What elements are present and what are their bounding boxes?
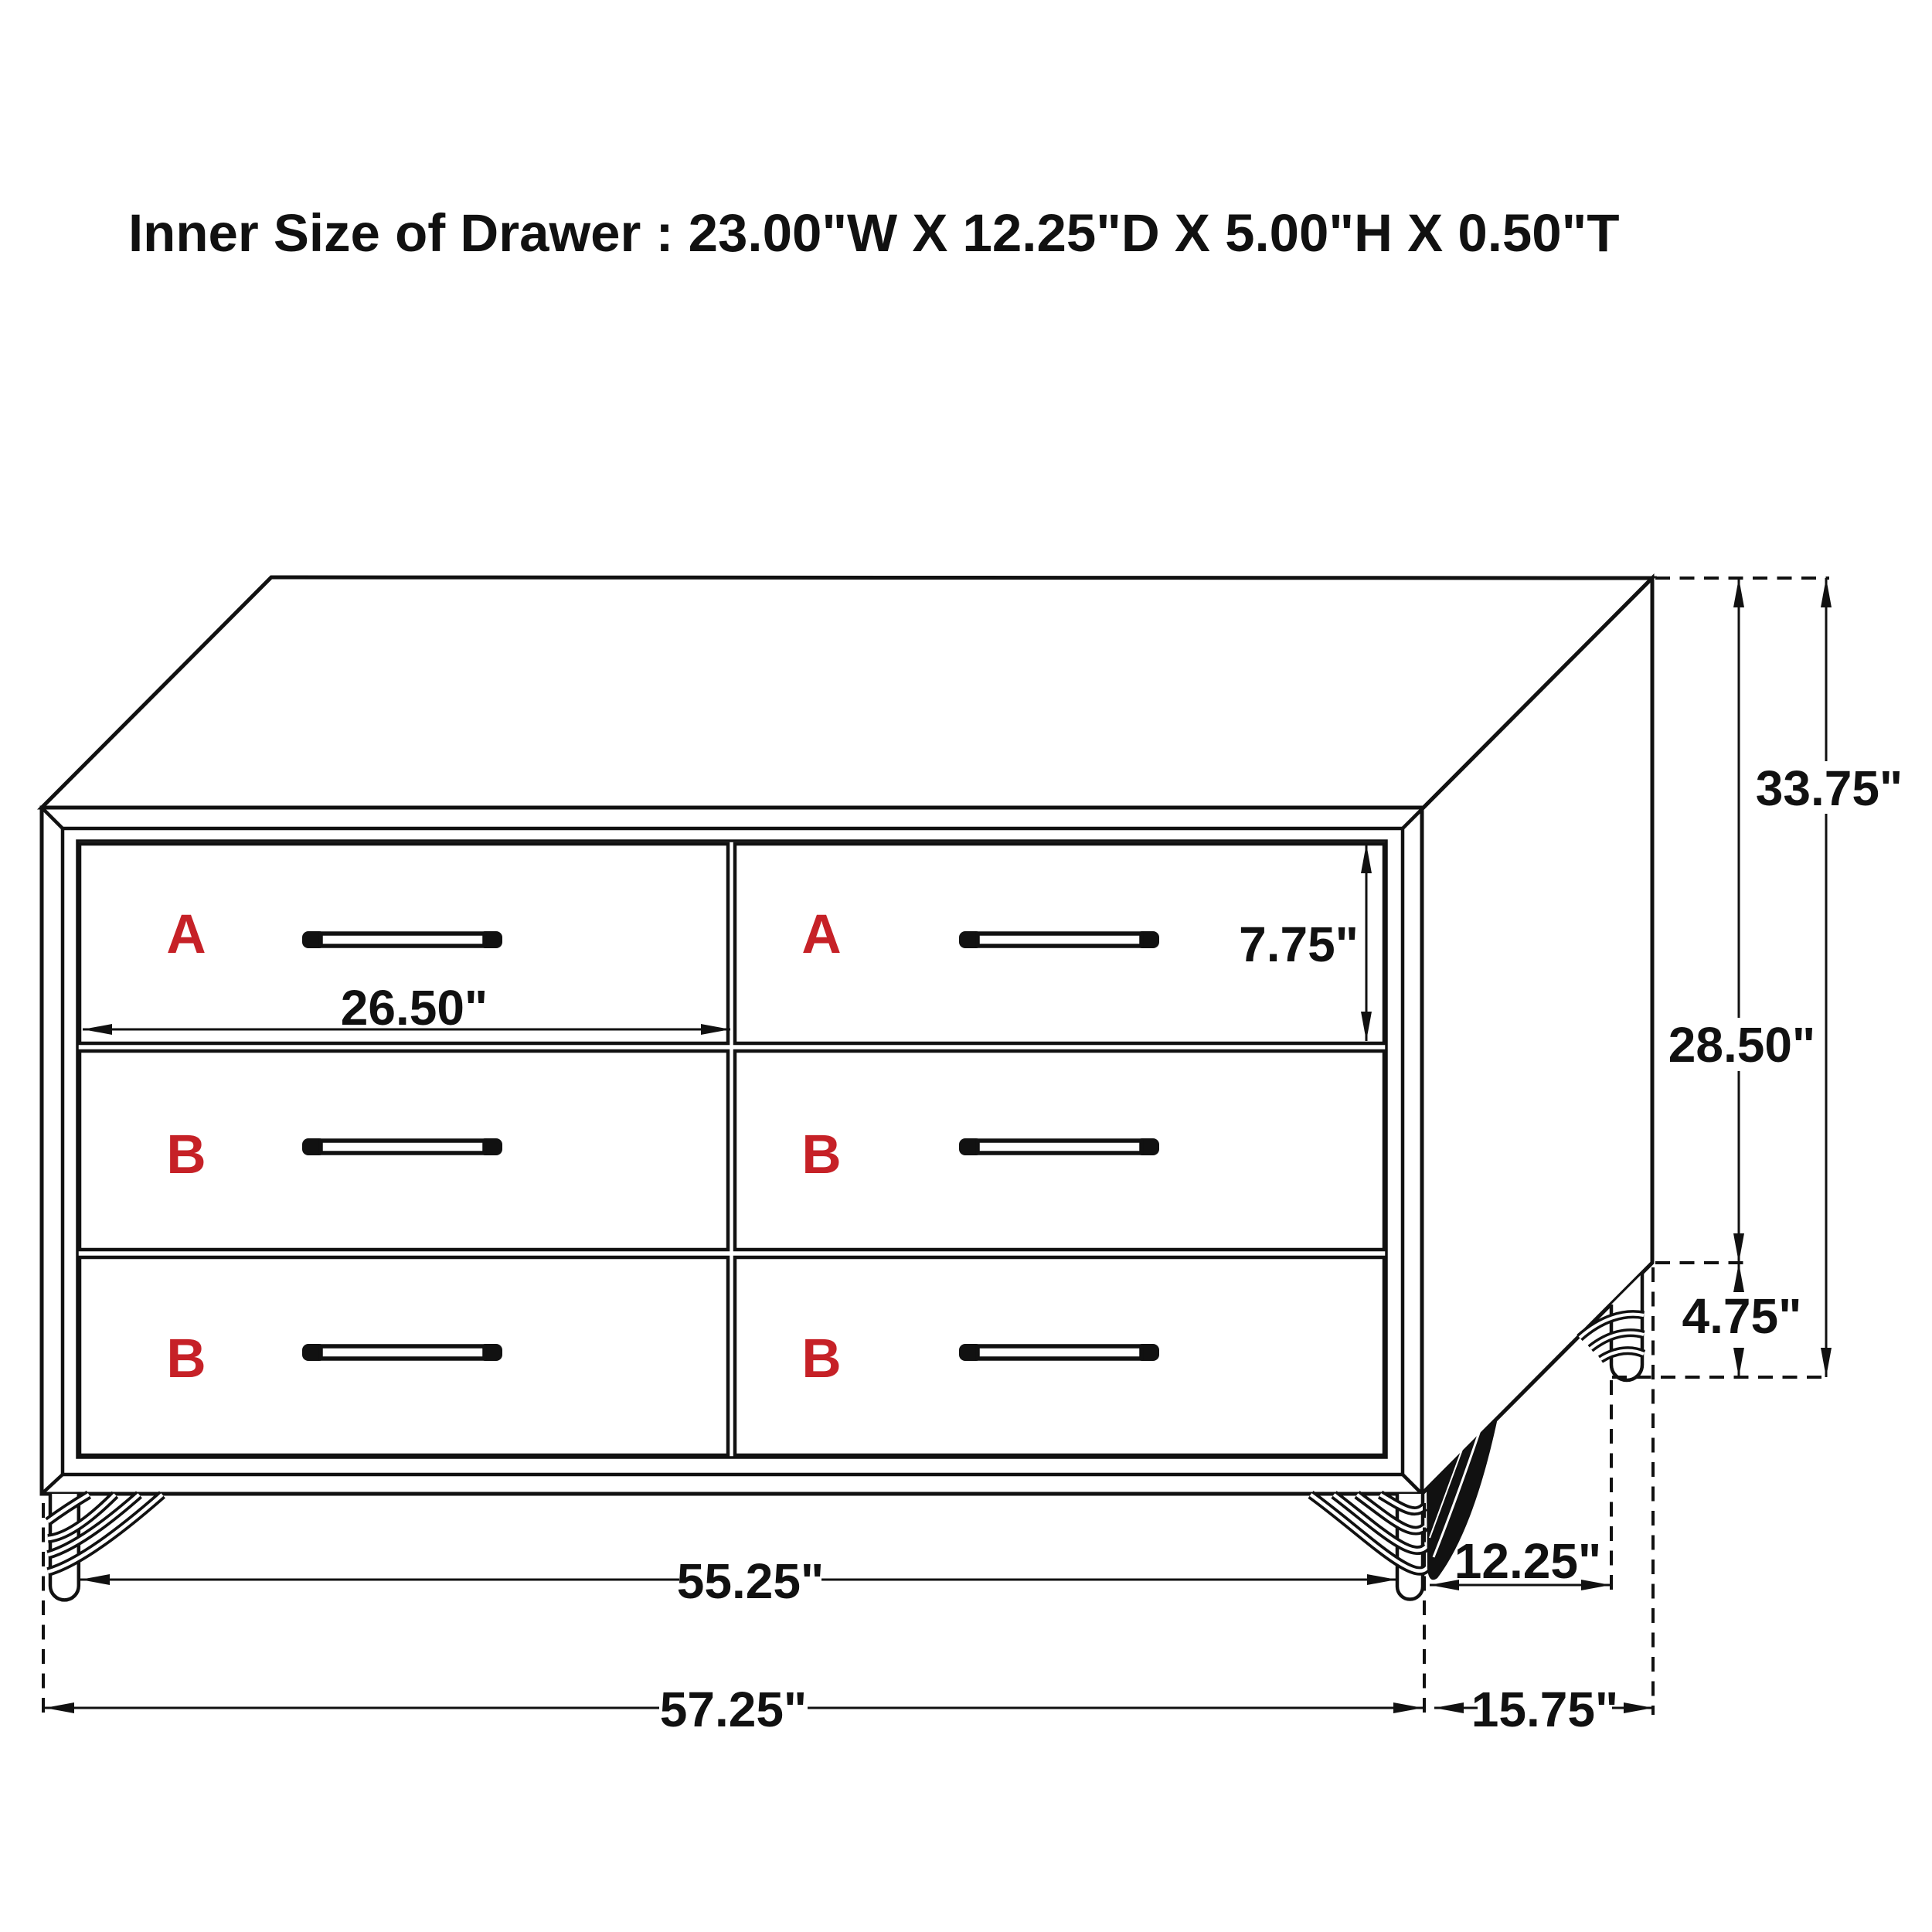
svg-text:55.25": 55.25" [677, 1553, 825, 1609]
svg-text:33.75": 33.75" [1756, 760, 1903, 816]
svg-text:28.50": 28.50" [1668, 1017, 1816, 1073]
svg-text:26.50": 26.50" [341, 980, 488, 1036]
svg-text:B: B [166, 1328, 206, 1389]
svg-text:A: A [801, 904, 841, 965]
svg-text:Inner Size of Drawer : 23.00"W: Inner Size of Drawer : 23.00"W X 12.25"D… [128, 203, 1619, 263]
svg-text:12.25": 12.25" [1454, 1533, 1602, 1589]
svg-text:B: B [801, 1124, 841, 1185]
svg-text:57.25": 57.25" [660, 1682, 808, 1737]
svg-text:A: A [166, 904, 206, 965]
svg-text:B: B [801, 1328, 841, 1389]
svg-text:15.75": 15.75" [1471, 1682, 1619, 1737]
svg-text:4.75": 4.75" [1682, 1288, 1802, 1344]
svg-text:7.75": 7.75" [1239, 917, 1359, 972]
svg-text:B: B [166, 1124, 206, 1185]
